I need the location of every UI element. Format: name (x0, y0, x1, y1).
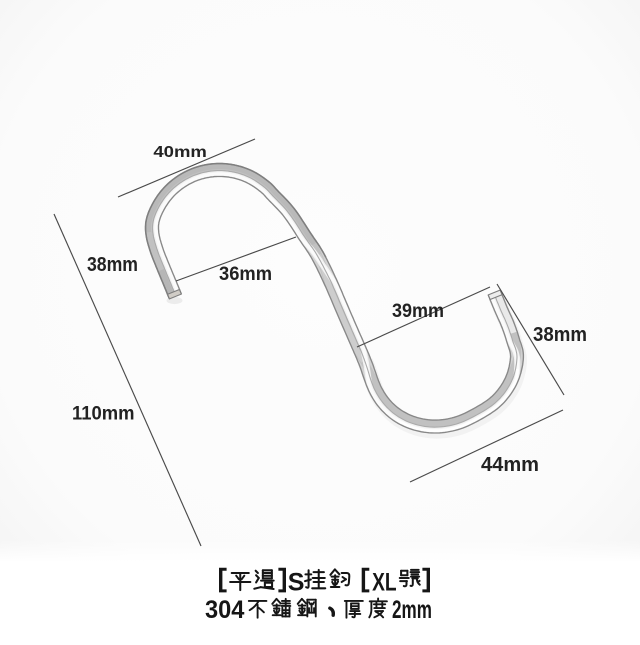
svg-text:110mm: 110mm (72, 404, 135, 425)
svg-text:39mm: 39mm (392, 301, 444, 322)
svg-text:40mm: 40mm (153, 144, 207, 161)
svg-text:36mm: 36mm (219, 264, 272, 285)
svg-text:304: 304 (205, 596, 244, 624)
svg-text:44mm: 44mm (481, 454, 539, 476)
svg-text:38mm: 38mm (87, 254, 138, 276)
svg-text:38mm: 38mm (533, 324, 587, 346)
svg-text:XL: XL (372, 569, 397, 597)
svg-text:S: S (288, 569, 305, 597)
svg-text:2mm: 2mm (392, 596, 432, 624)
